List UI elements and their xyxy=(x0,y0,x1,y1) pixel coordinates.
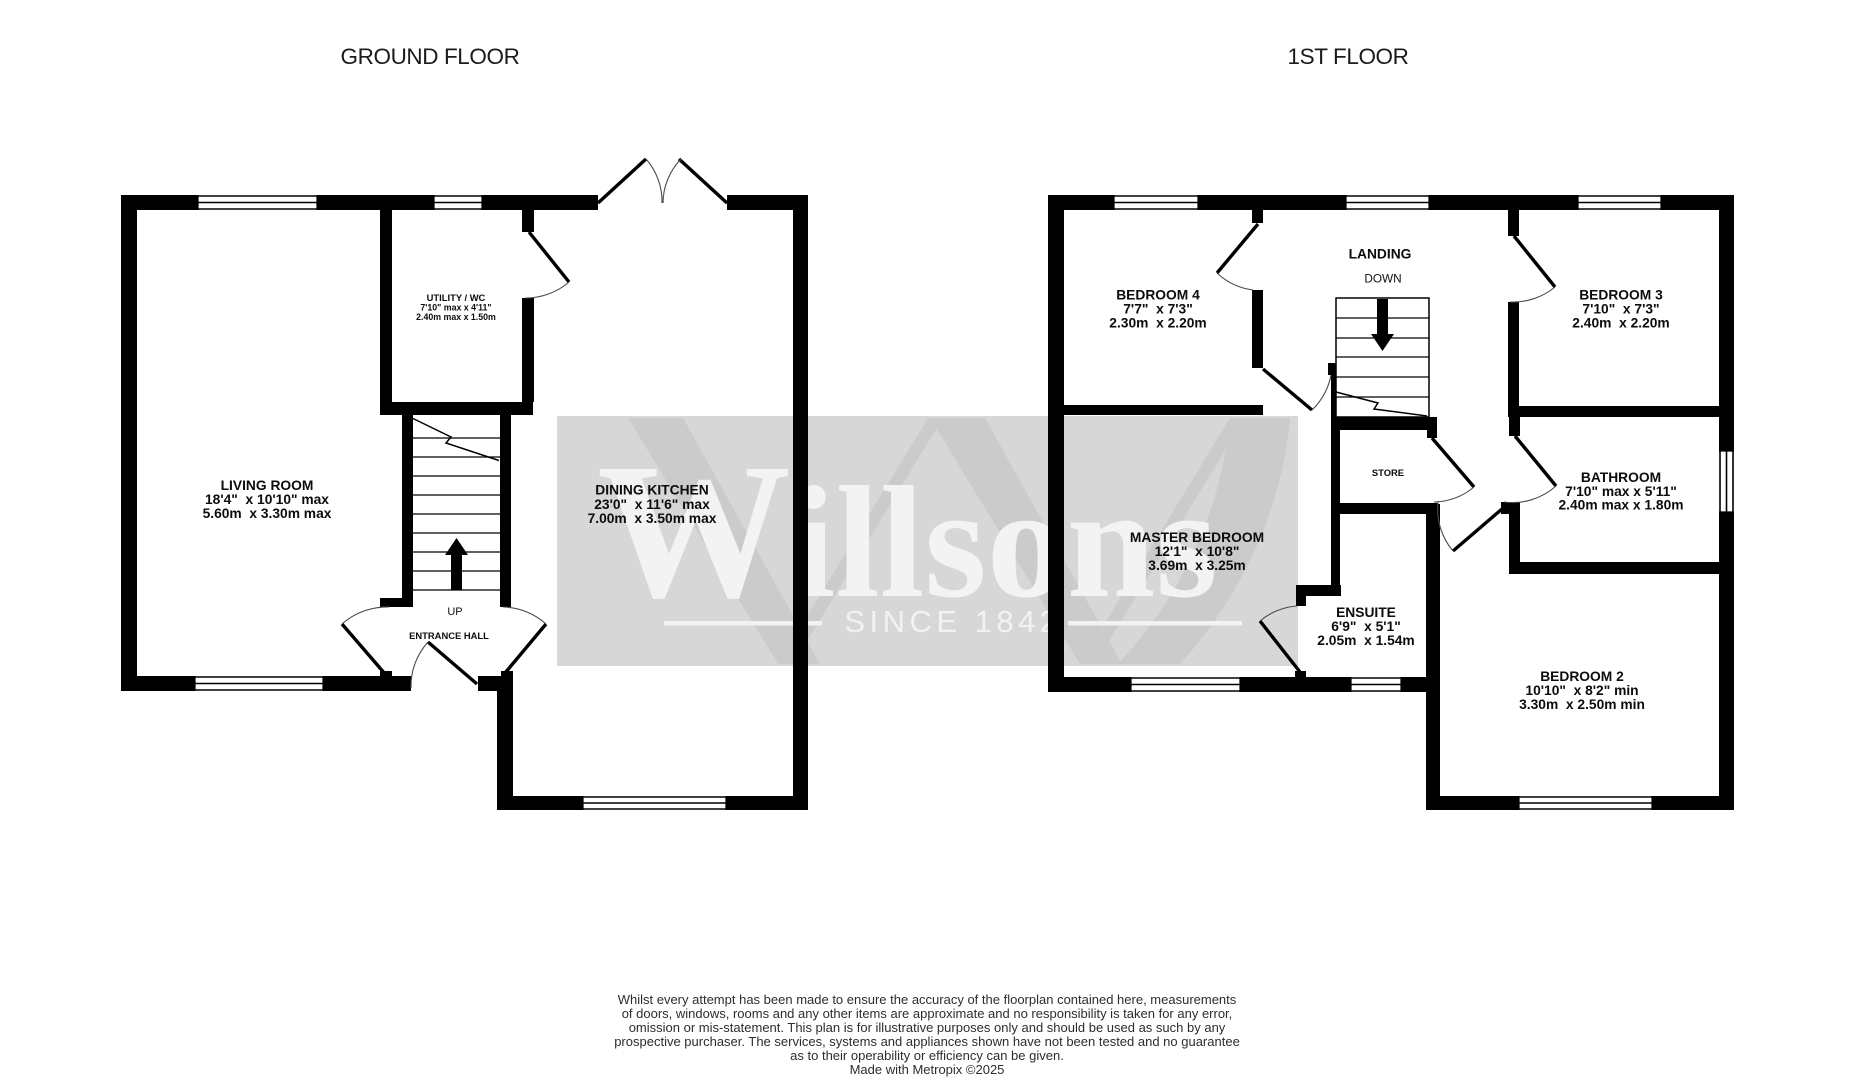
svg-text:as to their operability or eff: as to their operability or efficiency ca… xyxy=(790,1048,1064,1063)
svg-text:BEDROOM 3: BEDROOM 3 xyxy=(1579,288,1663,303)
svg-text:7'10" max x 5'11": 7'10" max x 5'11" xyxy=(1565,484,1677,499)
svg-text:ENTRANCE HALL: ENTRANCE HALL xyxy=(409,630,489,641)
svg-text:BEDROOM 4: BEDROOM 4 xyxy=(1116,288,1200,303)
svg-text:DOWN: DOWN xyxy=(1364,272,1401,286)
svg-text:LIVING ROOM: LIVING ROOM xyxy=(221,478,314,493)
svg-text:3.69m x 3.25m: 3.69m x 3.25m xyxy=(1148,558,1245,573)
svg-text:omission or mis-statement. Thi: omission or mis-statement. This plan is … xyxy=(629,1020,1226,1035)
svg-text:7'10" x 7'3": 7'10" x 7'3" xyxy=(1582,301,1659,316)
svg-text:18'4" x 10'10" max: 18'4" x 10'10" max xyxy=(205,492,329,507)
svg-text:Made with Metropix ©2025: Made with Metropix ©2025 xyxy=(850,1062,1005,1077)
svg-text:Whilst every attempt has been: Whilst every attempt has been made to en… xyxy=(618,992,1237,1007)
svg-text:UP: UP xyxy=(447,606,462,618)
svg-text:2.40m max x 1.50m: 2.40m max x 1.50m xyxy=(416,312,496,322)
svg-text:5.60m x 3.30m max: 5.60m x 3.30m max xyxy=(203,506,332,521)
svg-text:7'7" x 7'3": 7'7" x 7'3" xyxy=(1123,301,1193,316)
svg-text:LANDING: LANDING xyxy=(1349,247,1412,262)
svg-text:12'1" x 10'8": 12'1" x 10'8" xyxy=(1155,544,1240,559)
svg-text:6'9" x 5'1": 6'9" x 5'1" xyxy=(1331,619,1401,634)
svg-text:ENSUITE: ENSUITE xyxy=(1336,605,1396,620)
svg-text:SINCE 1842: SINCE 1842 xyxy=(844,604,1061,639)
svg-text:3.30m x 2.50m min: 3.30m x 2.50m min xyxy=(1519,697,1645,712)
svg-text:7.00m x 3.50m max: 7.00m x 3.50m max xyxy=(588,511,717,526)
svg-text:23'0" x 11'6" max: 23'0" x 11'6" max xyxy=(594,497,710,512)
svg-text:BEDROOM 2: BEDROOM 2 xyxy=(1540,669,1624,684)
svg-text:DINING KITCHEN: DINING KITCHEN xyxy=(595,483,708,498)
svg-text:of doors, windows, rooms and a: of doors, windows, rooms and any other i… xyxy=(622,1006,1233,1021)
svg-text:2.40m x 2.20m: 2.40m x 2.20m xyxy=(1572,315,1669,330)
svg-text:1ST FLOOR: 1ST FLOOR xyxy=(1287,44,1408,69)
svg-text:UTILITY / WC: UTILITY / WC xyxy=(427,292,486,303)
svg-text:2.30m x 2.20m: 2.30m x 2.20m xyxy=(1109,315,1206,330)
svg-text:2.05m x 1.54m: 2.05m x 1.54m xyxy=(1317,633,1414,648)
svg-text:7'10" max x 4'11": 7'10" max x 4'11" xyxy=(420,303,491,313)
svg-text:BATHROOM: BATHROOM xyxy=(1581,470,1661,485)
svg-text:MASTER BEDROOM: MASTER BEDROOM xyxy=(1130,530,1264,545)
svg-text:prospective purchaser. The ser: prospective purchaser. The services, sys… xyxy=(614,1034,1240,1049)
svg-text:GROUND FLOOR: GROUND FLOOR xyxy=(341,44,520,69)
svg-text:2.40m max x 1.80m: 2.40m max x 1.80m xyxy=(1558,498,1683,513)
svg-text:10'10" x 8'2" min: 10'10" x 8'2" min xyxy=(1525,683,1638,698)
svg-text:STORE: STORE xyxy=(1372,467,1404,478)
